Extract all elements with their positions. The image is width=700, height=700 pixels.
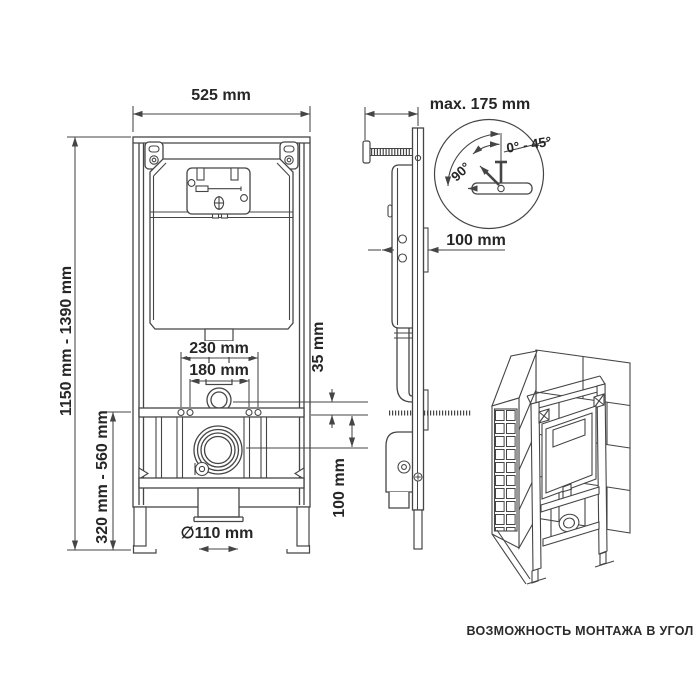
corner-illustration: [492, 350, 630, 584]
dim-lower-height-range-label: 320 mm - 560 mm: [95, 410, 111, 543]
dim-frame-depth-label: 100 mm: [444, 233, 508, 249]
dim-flush-offset-label: 35 mm: [311, 322, 327, 373]
dim-frame-width-label: 525 mm: [191, 88, 251, 104]
side-view-drawing: [363, 128, 472, 549]
dim-fixing-inner-label: 180 mm: [187, 363, 251, 379]
dim-frame-height-range-label: 1150 mm - 1390 mm: [59, 266, 75, 416]
dim-outlet-drop-label: 100 mm: [332, 458, 348, 518]
technical-drawing-sheet: 525 mm max. 175 mm 1150 mm - 1390 mm 320…: [0, 0, 700, 700]
dim-outlet-diameter-label: ∅110 mm: [181, 526, 254, 542]
corner-installation-caption: ВОЗМОЖНОСТЬ МОНТАЖА В УГОЛ: [466, 624, 693, 638]
dim-fixing-outer-label: 230 mm: [187, 341, 251, 357]
installation-frame-line-art: [0, 0, 700, 700]
dim-wall-distance-label: max. 175 mm: [430, 97, 531, 113]
